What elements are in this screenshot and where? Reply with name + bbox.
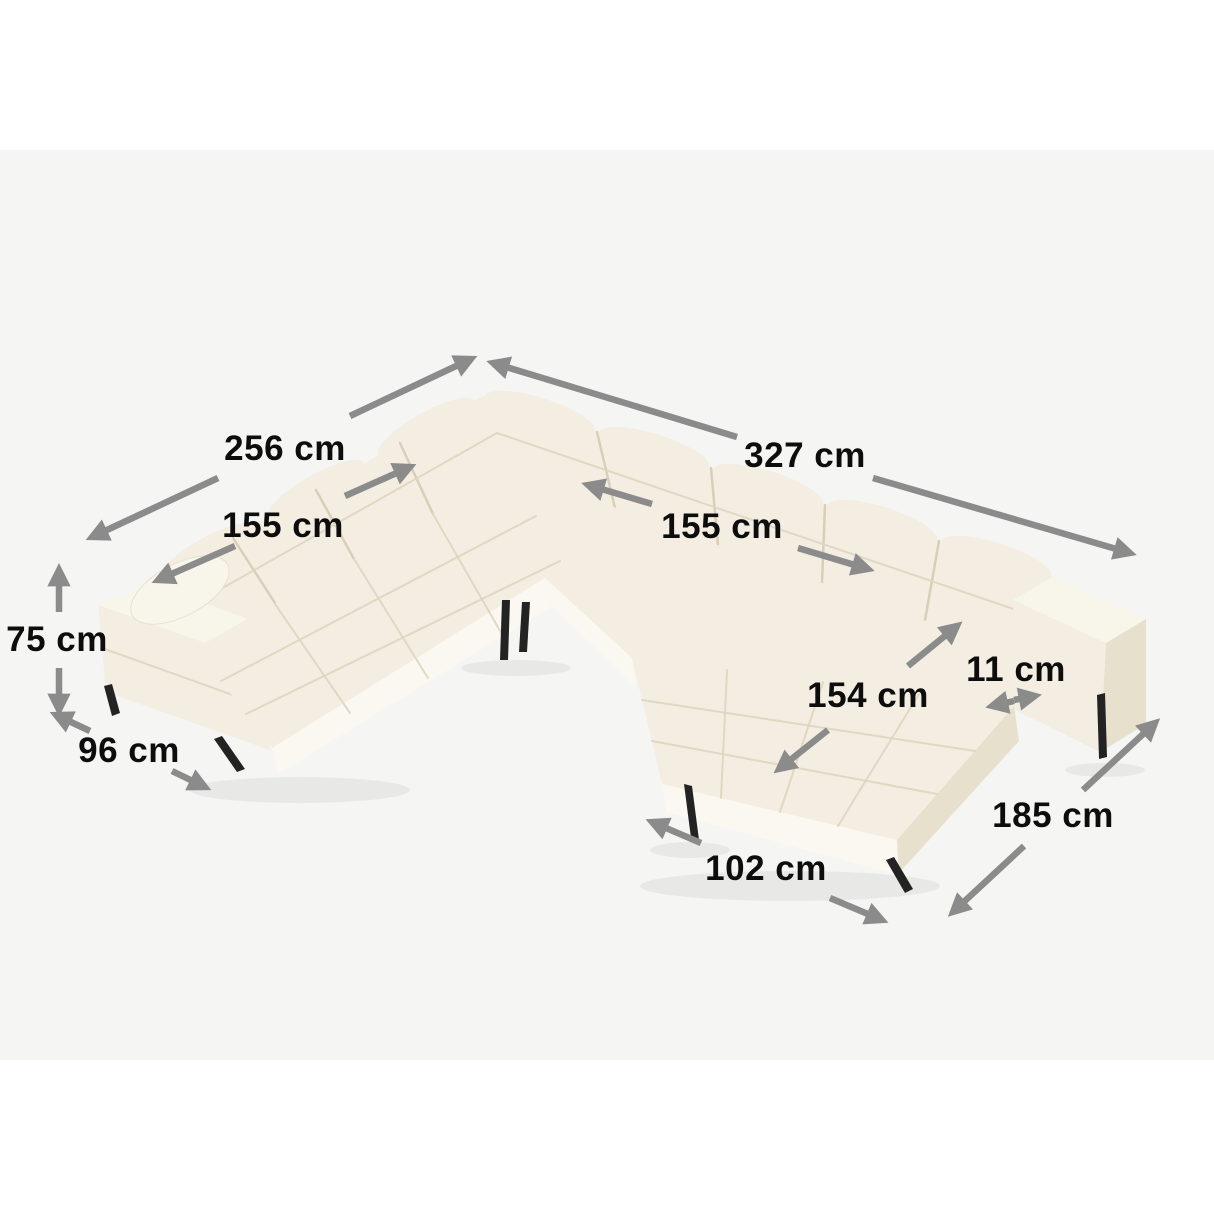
dimension-label-armrest-width: 11 cm — [966, 650, 1066, 690]
sofa-dimension-scene — [0, 0, 1214, 1214]
dimension-label-side-depth-right: 185 cm — [992, 796, 1114, 836]
dimension-label-right-width: 327 cm — [744, 436, 866, 476]
dimension-label-chaise-seat-length: 154 cm — [807, 676, 929, 716]
diagram-stage: 256 cm 327 cm 155 cm 155 cm 154 cm 11 cm… — [0, 0, 1214, 1214]
dimension-label-chaise-width: 102 cm — [705, 849, 827, 889]
dimension-label-left-width: 256 cm — [224, 429, 346, 469]
dimension-label-seat-left: 155 cm — [222, 506, 344, 546]
dimension-label-depth-left: 96 cm — [78, 731, 180, 771]
dimension-label-height: 75 cm — [6, 620, 108, 660]
dimension-label-seat-right: 155 cm — [661, 507, 783, 547]
